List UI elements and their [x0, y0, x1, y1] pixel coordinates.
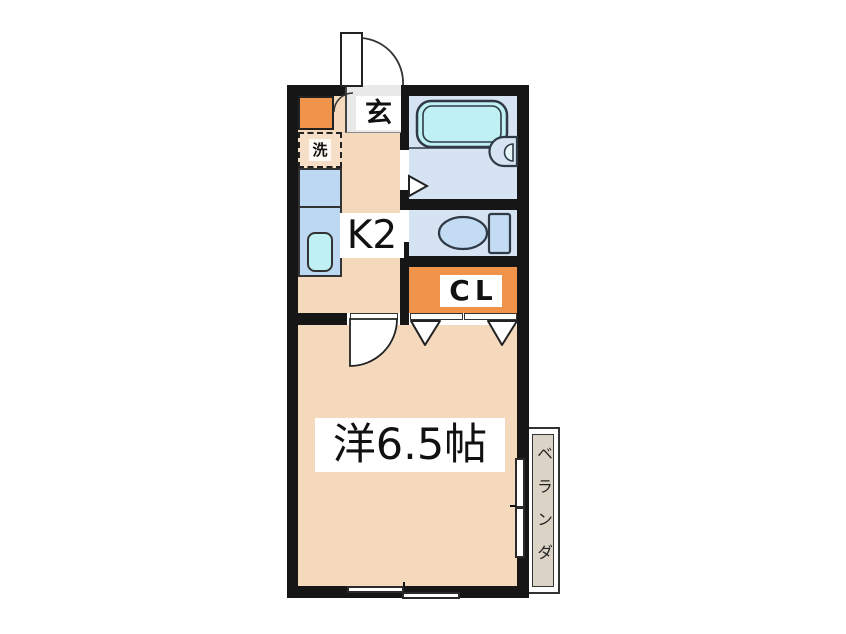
room-door-leaf [350, 313, 398, 320]
closet-label-text: CL [444, 277, 497, 305]
stove-counter [298, 96, 334, 130]
bottom-window-pane-right [402, 592, 460, 599]
balcony-window-pane-upper [515, 458, 525, 508]
bathroom-door-opening [400, 150, 409, 190]
balcony-label-text: ベランダ [531, 445, 555, 577]
bottom-window-latch [403, 582, 405, 587]
main-room-label-text: 洋6.5帖 [333, 424, 487, 467]
laundry-label: 洗 [309, 139, 331, 161]
closet-label: CL [440, 275, 502, 307]
entrance-label: 玄 [356, 96, 401, 130]
kitchen-sink [307, 232, 333, 272]
wall-bath-toilet [400, 199, 517, 210]
main-room-label: 洋6.5帖 [315, 418, 505, 472]
wall-toilet-closet [400, 256, 517, 267]
closet-door-leaf-right [464, 313, 517, 320]
front-door-leaf [341, 33, 362, 86]
kitchen-counter [298, 168, 342, 277]
entrance-label-text: 玄 [365, 100, 392, 127]
kitchen-label: K2 [340, 213, 404, 258]
floor-plan-canvas: 玄 洗 K2 CL 洋6.5帖 ベランダ [0, 0, 846, 634]
counter-divider [300, 206, 340, 208]
bottom-window-pane-left [347, 586, 404, 593]
wall-left [287, 85, 298, 598]
closet-door-leaf-left [410, 313, 463, 320]
kitchen-label-text: K2 [347, 216, 397, 255]
balcony-window-latch [510, 505, 516, 507]
toilet-floor [409, 210, 517, 256]
balcony-label: ベランダ [532, 434, 554, 587]
front-door-swing-arc [362, 38, 403, 85]
bathroom-floor [409, 96, 517, 199]
laundry-label-text: 洗 [312, 143, 327, 158]
balcony-window-pane-lower [515, 507, 525, 558]
